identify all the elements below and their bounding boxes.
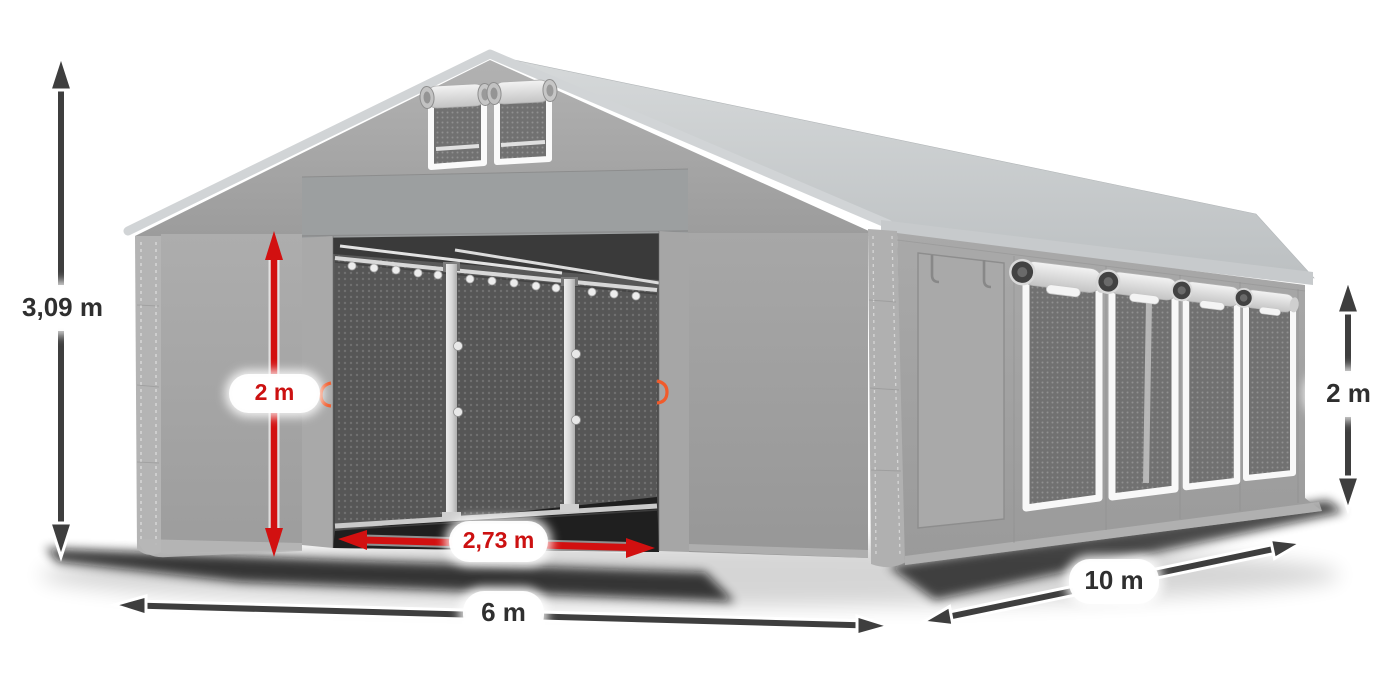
interior-mesh-wall: [335, 255, 657, 531]
label-total-height-text: 3,09 m: [22, 292, 103, 323]
front-left-corner-cover: [135, 236, 161, 555]
inner-pole-through-mesh: [1146, 300, 1149, 483]
door-jamb-right: [659, 231, 689, 552]
entrance-interior: [333, 230, 659, 552]
gable-vent-left: [419, 83, 492, 167]
label-total-height: 3,09 m: [14, 288, 111, 328]
side-window-4: [1233, 288, 1300, 478]
label-entrance-height: 2 m: [232, 377, 317, 410]
tent-illustration: [0, 0, 1400, 700]
gable-vent-right: [486, 79, 557, 162]
label-side-length-text: 10 m: [1084, 565, 1143, 596]
label-side-wall-height-text: 2 m: [1326, 378, 1371, 409]
label-entrance-width: 2,73 m: [452, 524, 545, 559]
front-wall-right: [689, 233, 868, 558]
label-side-wall-height: 2 m: [1311, 374, 1386, 414]
side-door-panel: [918, 253, 1004, 528]
tent-dimension-diagram: 3,09 m 2 m 2,73 m 6 m 10 m 2 m: [0, 0, 1400, 700]
side-wall: [897, 233, 1322, 565]
label-front-width: 6 m: [466, 594, 541, 633]
label-entrance-height-text: 2 m: [255, 379, 295, 406]
side-window-2: [1095, 269, 1184, 497]
label-front-width-text: 6 m: [481, 597, 526, 628]
side-window-1: [1008, 259, 1109, 508]
label-entrance-width-text: 2,73 m: [463, 527, 535, 554]
door-header: [302, 169, 688, 238]
label-side-length: 10 m: [1072, 562, 1156, 601]
